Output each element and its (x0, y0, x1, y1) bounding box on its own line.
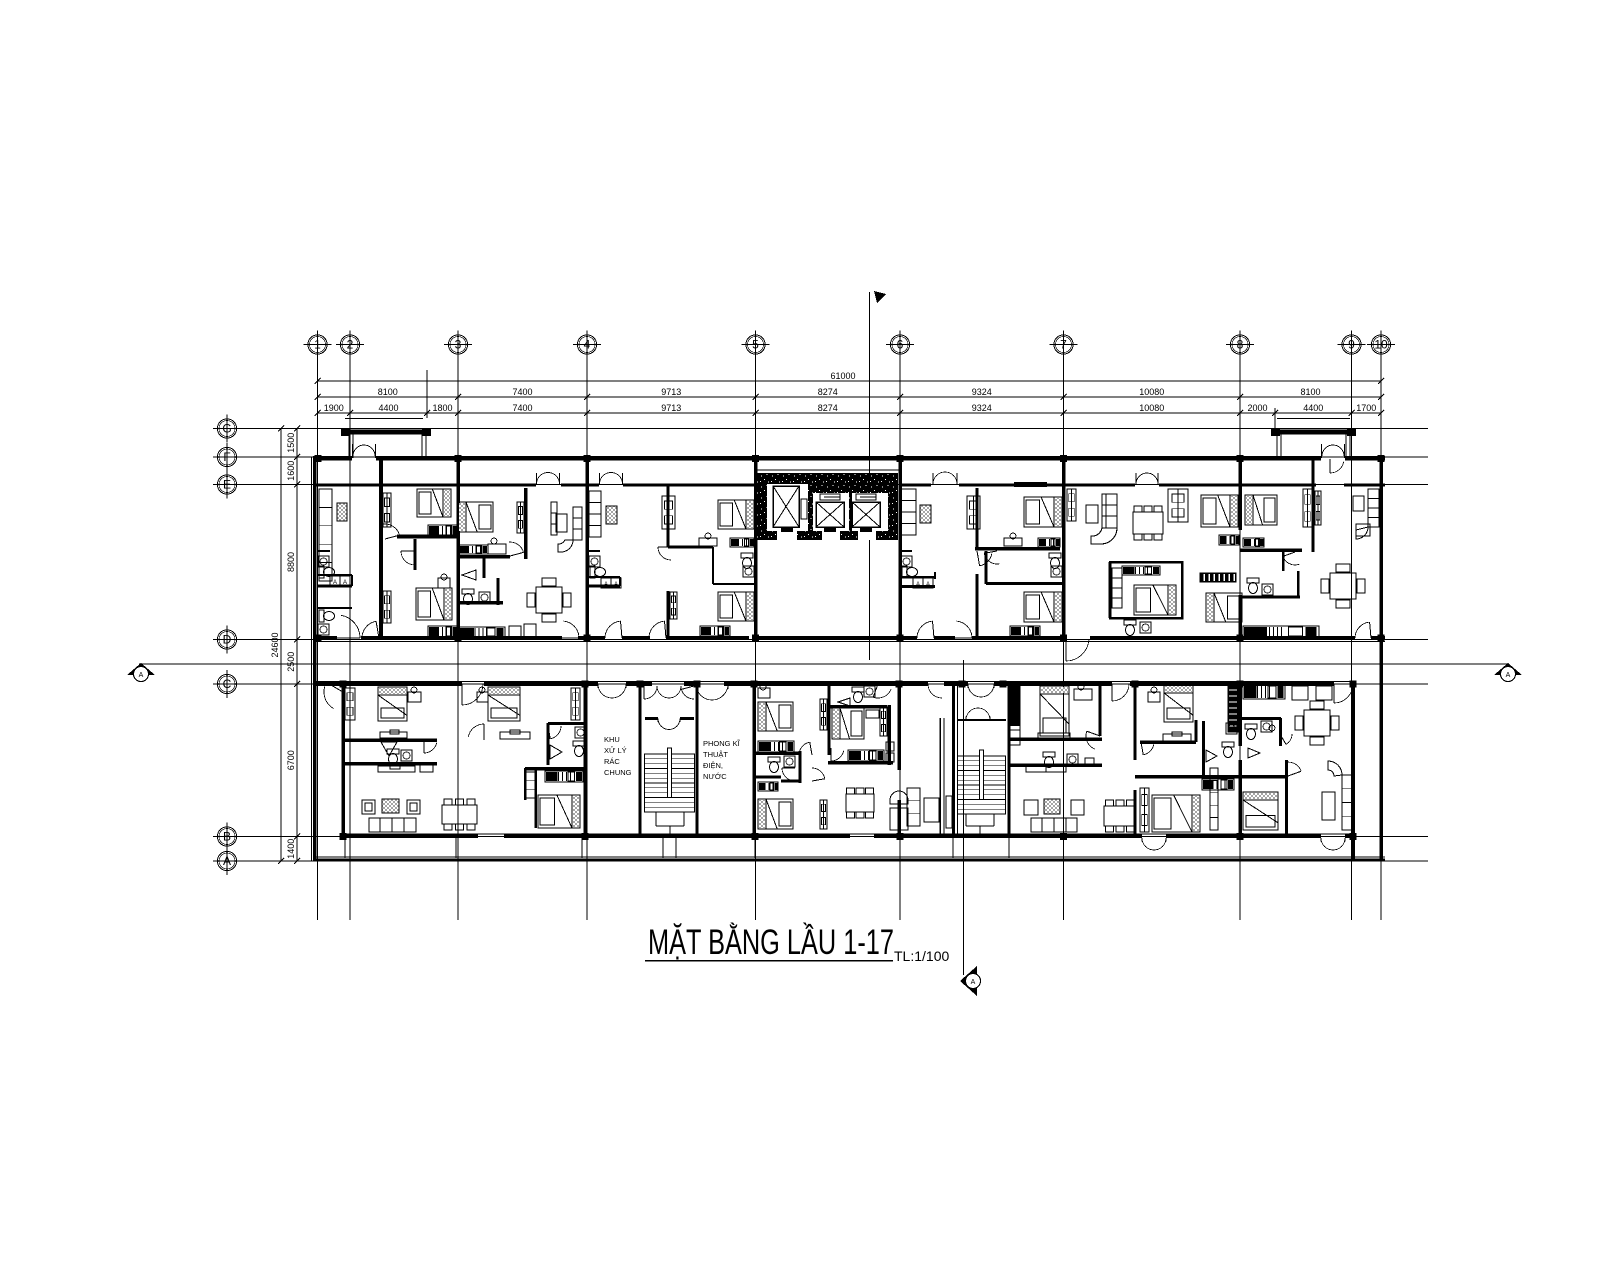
svg-text:1500: 1500 (286, 433, 296, 453)
svg-text:2: 2 (347, 338, 354, 352)
svg-text:CHUNG: CHUNG (604, 768, 632, 777)
svg-text:1700: 1700 (1356, 403, 1376, 413)
svg-text:10080: 10080 (1139, 387, 1164, 397)
svg-text:2000: 2000 (1247, 403, 1267, 413)
svg-text:A: A (614, 582, 618, 588)
svg-text:61000: 61000 (830, 371, 855, 381)
svg-text:8100: 8100 (378, 387, 398, 397)
svg-text:8800: 8800 (286, 552, 296, 572)
svg-text:G: G (222, 422, 231, 436)
svg-text:A: A (604, 582, 608, 588)
svg-text:6700: 6700 (286, 750, 296, 770)
svg-text:PHONG KĨ: PHONG KĨ (703, 739, 741, 748)
svg-text:5: 5 (752, 338, 759, 352)
svg-text:7: 7 (1060, 338, 1067, 352)
svg-text:1900: 1900 (324, 403, 344, 413)
svg-text:ĐIỆN,: ĐIỆN, (703, 761, 723, 770)
svg-text:C: C (223, 677, 232, 691)
svg-text:1800: 1800 (432, 403, 452, 413)
svg-text:A: A (1506, 672, 1511, 679)
svg-text:A: A (926, 582, 930, 588)
svg-text:4: 4 (584, 338, 591, 352)
svg-text:1: 1 (314, 338, 321, 352)
svg-text:10: 10 (1374, 338, 1388, 352)
svg-text:8: 8 (1237, 338, 1244, 352)
svg-text:9: 9 (1348, 338, 1355, 352)
svg-text:3: 3 (455, 338, 462, 352)
svg-text:7400: 7400 (512, 387, 532, 397)
svg-text:8100: 8100 (1300, 387, 1320, 397)
svg-text:9713: 9713 (661, 403, 681, 413)
svg-text:THUẬT: THUẬT (703, 750, 728, 759)
svg-text:8274: 8274 (818, 403, 838, 413)
svg-text:KHU: KHU (604, 735, 620, 744)
svg-text:NƯỚC: NƯỚC (703, 772, 727, 781)
svg-text:8274: 8274 (818, 387, 838, 397)
svg-text:XỬ LÝ: XỬ LÝ (604, 746, 627, 755)
svg-text:24600: 24600 (270, 632, 280, 657)
svg-text:4400: 4400 (378, 403, 398, 413)
svg-text:10080: 10080 (1139, 403, 1164, 413)
svg-text:E: E (223, 478, 231, 492)
svg-text:F: F (223, 450, 230, 464)
svg-text:A: A (343, 580, 347, 586)
svg-text:A: A (139, 672, 144, 679)
svg-text:1600: 1600 (286, 461, 296, 481)
svg-text:9324: 9324 (972, 403, 992, 413)
svg-text:2500: 2500 (286, 652, 296, 672)
svg-text:A: A (333, 580, 337, 586)
svg-text:1400: 1400 (286, 839, 296, 859)
svg-text:MẶT BẰNG LẦU 1-17: MẶT BẰNG LẦU 1-17 (648, 922, 894, 962)
svg-text:TL:1/100: TL:1/100 (894, 948, 949, 964)
svg-text:D: D (223, 633, 232, 647)
svg-text:9713: 9713 (661, 387, 681, 397)
svg-text:A: A (971, 979, 976, 986)
svg-text:A: A (223, 854, 231, 868)
svg-text:6: 6 (897, 338, 904, 352)
svg-text:9324: 9324 (972, 387, 992, 397)
svg-text:B: B (223, 830, 231, 844)
svg-text:RÁC: RÁC (604, 757, 620, 766)
svg-text:4400: 4400 (1303, 403, 1323, 413)
svg-text:A: A (916, 582, 920, 588)
svg-text:7400: 7400 (512, 403, 532, 413)
